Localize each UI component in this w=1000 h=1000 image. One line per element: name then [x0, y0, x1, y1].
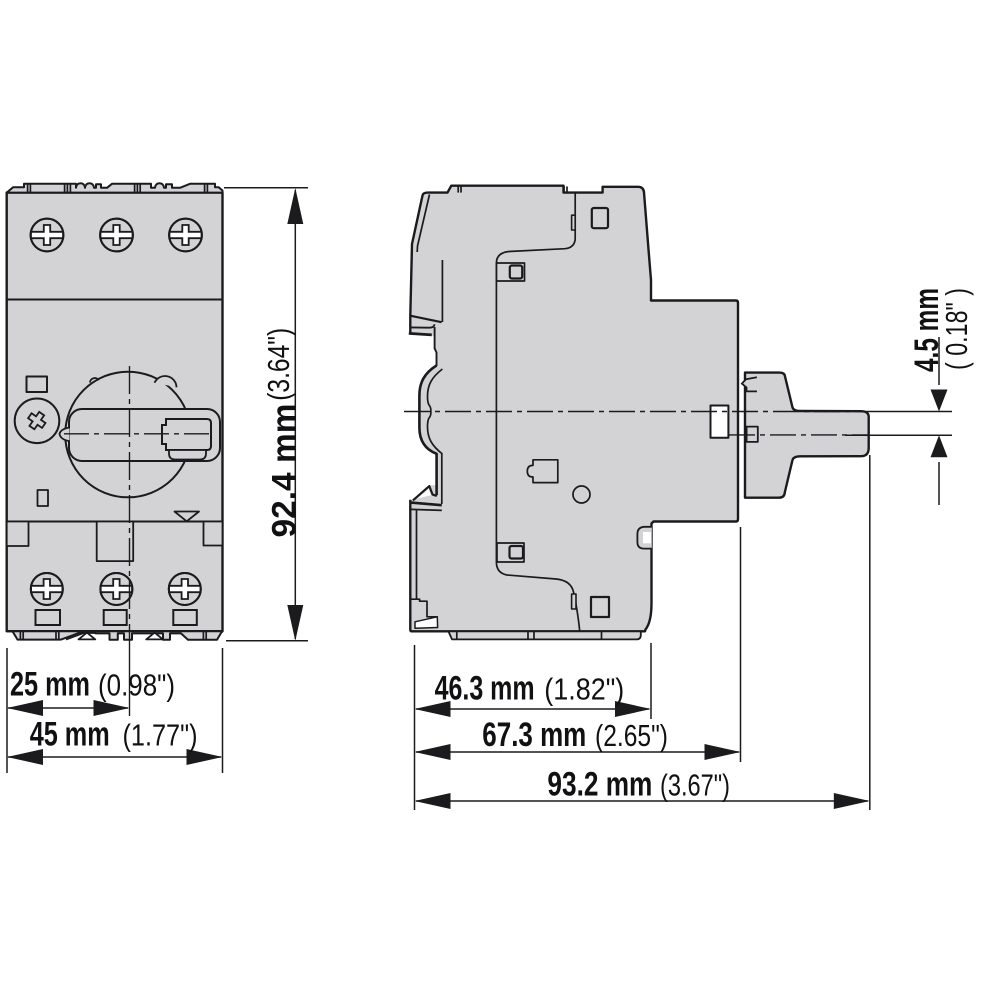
svg-text:46.3 mm: 46.3 mm — [435, 670, 535, 708]
svg-text:(3.64"): (3.64") — [261, 328, 296, 401]
svg-text:93.2 mm: 93.2 mm — [547, 766, 652, 804]
svg-text:( 0.18" ): ( 0.18" ) — [939, 288, 974, 370]
svg-text:(1.82"): (1.82") — [544, 672, 624, 707]
svg-text:(1.77"): (1.77") — [123, 718, 198, 753]
svg-text:67.3 mm: 67.3 mm — [482, 716, 586, 754]
svg-text:(3.67"): (3.67") — [660, 768, 730, 803]
svg-text:45 mm: 45 mm — [30, 716, 110, 754]
svg-text:(0.98"): (0.98") — [98, 668, 175, 703]
svg-text:25 mm: 25 mm — [10, 666, 90, 704]
svg-text:92.4 mm: 92.4 mm — [266, 404, 304, 538]
svg-text:(2.65"): (2.65") — [595, 718, 668, 753]
